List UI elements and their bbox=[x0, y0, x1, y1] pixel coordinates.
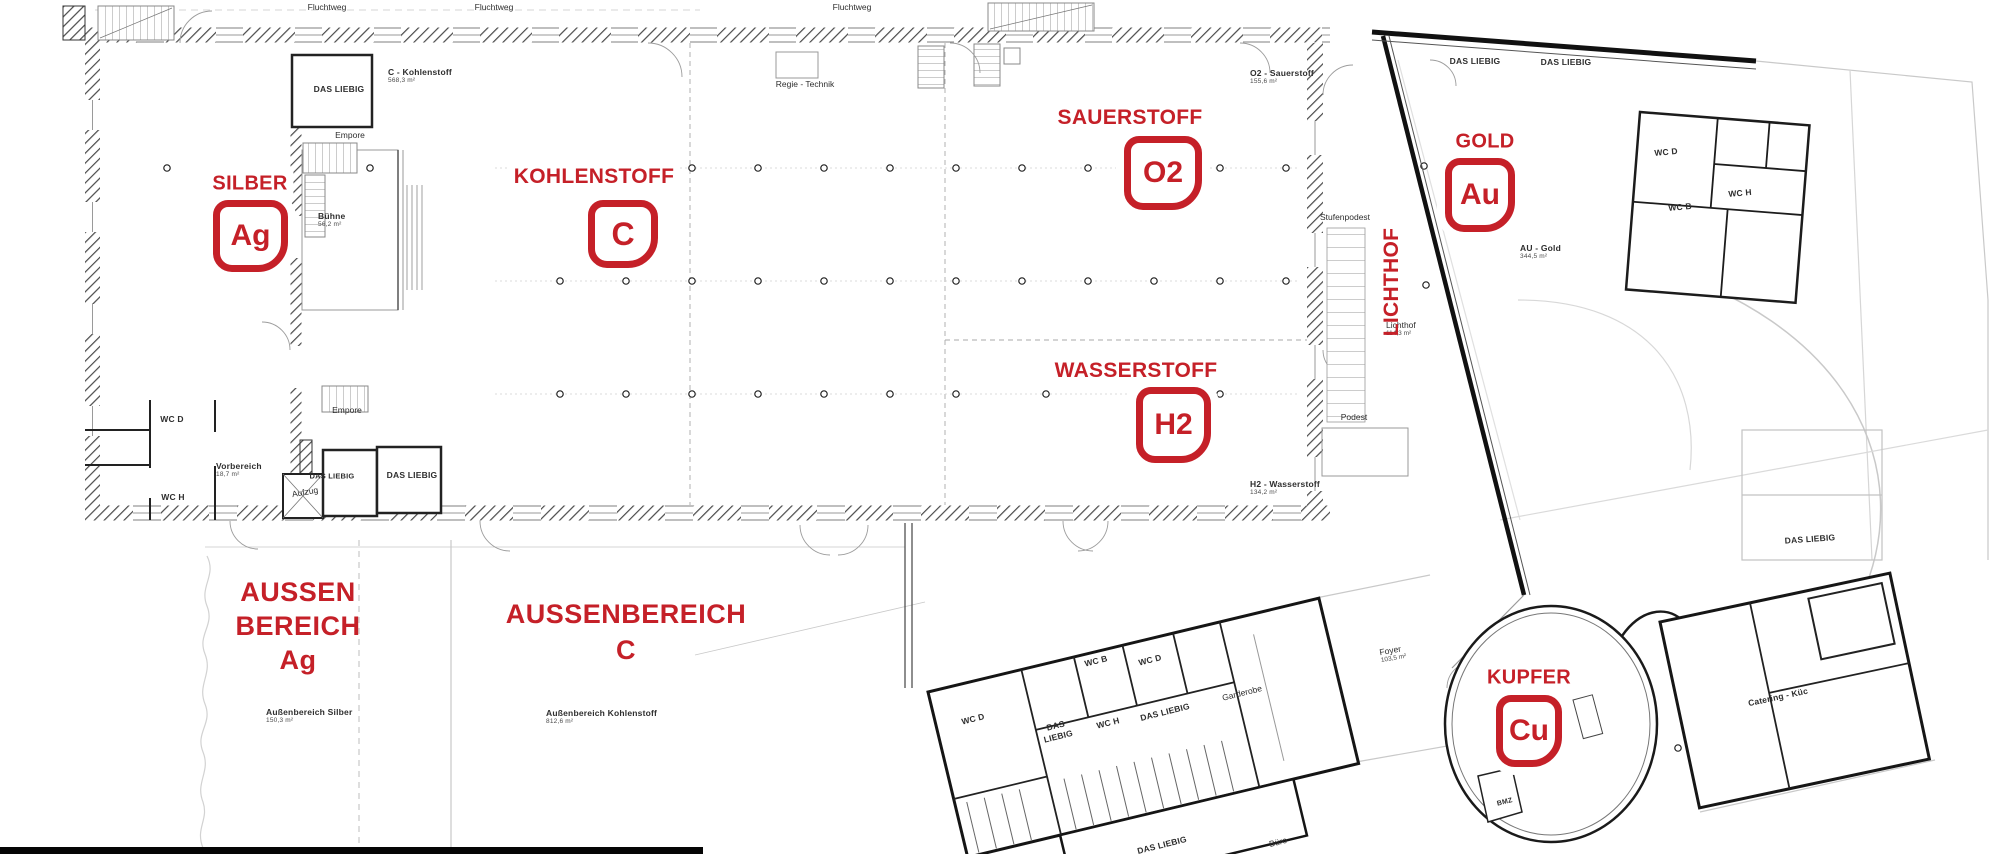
room-label-das-liebig: DAS LIEBIG bbox=[310, 472, 355, 481]
image-edge-bar bbox=[0, 847, 703, 854]
room-label-empore: Empore bbox=[335, 130, 365, 140]
area-label-aussenbereich-kohlenstoff: Außenbereich Kohlenstoff812,6 m² bbox=[546, 708, 657, 726]
area-label-silber: SILBER bbox=[206, 172, 293, 197]
room-label-das-liebig: DAS LIEBIG bbox=[1541, 57, 1592, 67]
area-label-aussenbereich-silber: Außenbereich Silber150,3 m² bbox=[266, 707, 352, 725]
floorplan-drawing bbox=[0, 0, 2000, 854]
area-label-wasserstoff: WASSERSTOFF bbox=[1049, 358, 1224, 384]
zone-label-aussenbereich-c: AUSSENBEREICH C bbox=[506, 596, 747, 668]
room-label-vorbereich: Vorbereich18,7 m² bbox=[216, 461, 262, 479]
room-label-fluchtweg: Fluchtweg bbox=[308, 2, 347, 12]
room-label-das-liebig: DAS LIEBIG bbox=[314, 84, 365, 94]
room-label-empore: Empore bbox=[332, 405, 362, 415]
room-label-h2-wasserstoff: H2 - Wasserstoff134,2 m² bbox=[1250, 479, 1320, 497]
area-label-kohlenstoff: KOHLENSTOFF bbox=[508, 164, 680, 190]
room-label-wc-h: WC H bbox=[161, 492, 184, 502]
area-badge-ag[interactable]: Ag bbox=[213, 200, 288, 272]
room-label-wc-h: WC H bbox=[1728, 187, 1752, 199]
floorplan-canvas: Fluchtweg Fluchtweg Fluchtweg C - Kohlen… bbox=[0, 0, 2000, 854]
area-label-sauerstoff: SAUERSTOFF bbox=[1052, 105, 1209, 131]
area-badge-au[interactable]: Au bbox=[1445, 158, 1515, 232]
room-label-wc-d: WC D bbox=[1654, 146, 1678, 158]
zone-label-aussenbereich-ag: AUSSEN BEREICH Ag bbox=[235, 575, 360, 677]
zone-label-lichthof: LICHTHOF bbox=[1379, 222, 1405, 343]
area-label-gold: GOLD bbox=[1450, 130, 1521, 155]
door-arcs bbox=[180, 11, 1473, 688]
room-label-das-liebig: DAS LIEBIG bbox=[1450, 56, 1501, 66]
room-label-o2-sauerstoff: O2 - Sauerstoff155,6 m² bbox=[1250, 68, 1314, 86]
room-label-das-liebig: DAS LIEBIG bbox=[387, 470, 438, 480]
annex-building bbox=[928, 598, 1372, 854]
area-badge-o2[interactable]: O2 bbox=[1124, 136, 1202, 210]
room-label-au-gold: AU - Gold344,5 m² bbox=[1520, 243, 1561, 261]
room-label-regie-technik: Regie - Technik bbox=[776, 79, 834, 89]
area-badge-cu[interactable]: Cu bbox=[1496, 695, 1562, 767]
room-label-wc-b: WC B bbox=[1668, 201, 1692, 213]
room-label-wc-d: WC D bbox=[160, 414, 183, 424]
gold-building bbox=[1372, 32, 1809, 303]
room-label-fluchtweg: Fluchtweg bbox=[833, 2, 872, 12]
room-label-podest: Podest bbox=[1341, 412, 1367, 422]
area-badge-h2[interactable]: H2 bbox=[1136, 387, 1211, 463]
area-badge-c[interactable]: C bbox=[588, 200, 658, 268]
room-label-buehne: Bühne56,2 m² bbox=[318, 211, 345, 229]
room-label-fluchtweg: Fluchtweg bbox=[475, 2, 514, 12]
room-label-c-kohlenstoff: C - Kohlenstoff568,3 m² bbox=[388, 67, 452, 85]
area-label-kupfer: KUPFER bbox=[1481, 666, 1577, 691]
room-label-stufenpodest: Stufenpodest bbox=[1320, 212, 1370, 222]
